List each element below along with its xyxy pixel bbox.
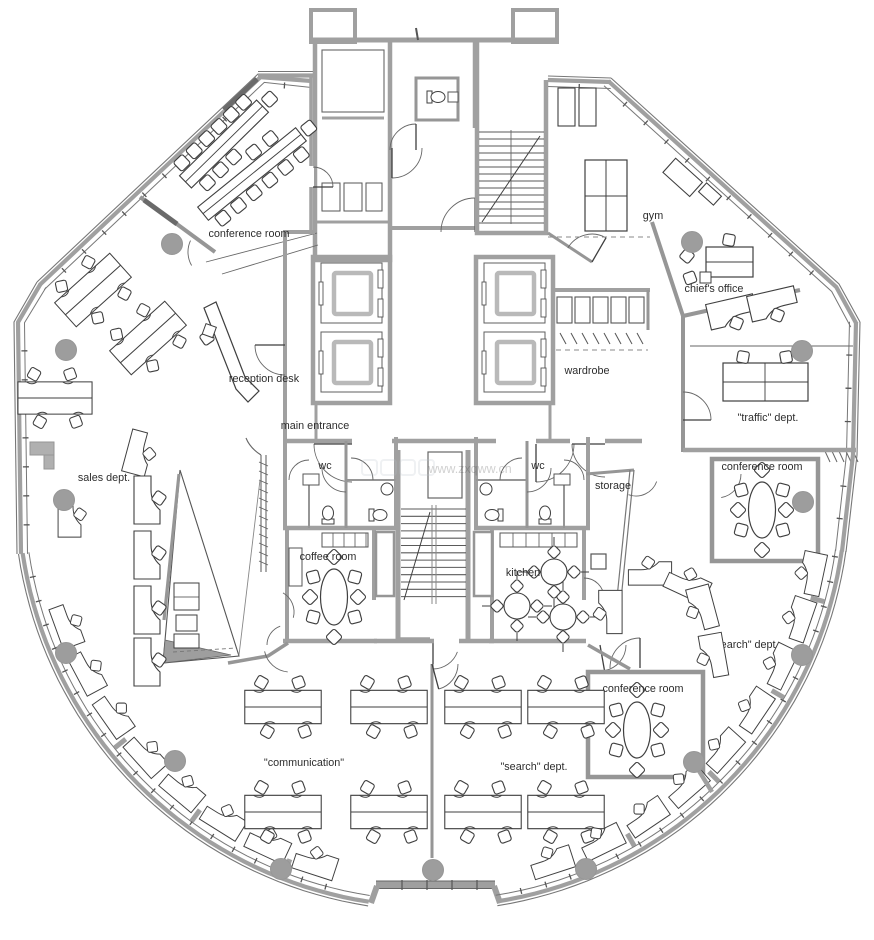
svg-text:conference room: conference room (721, 461, 802, 473)
svg-text:www.zxqww.cn: www.zxqww.cn (427, 462, 511, 476)
svg-text:chief's office: chief's office (685, 283, 744, 295)
svg-text:conference room: conference room (208, 228, 289, 240)
svg-text:conference room: conference room (602, 683, 683, 695)
svg-text:main entrance: main entrance (281, 420, 349, 432)
svg-text:wardrobe: wardrobe (563, 365, 609, 377)
svg-text:wc: wc (317, 460, 332, 472)
svg-text:kitchen: kitchen (506, 567, 540, 579)
svg-text:wc: wc (530, 460, 545, 472)
svg-text:storage: storage (595, 480, 631, 492)
svg-text:reception desk: reception desk (229, 373, 300, 385)
svg-text:"communication": "communication" (264, 757, 344, 769)
svg-text:sales dept.: sales dept. (78, 472, 130, 484)
svg-text:"search" dept.: "search" dept. (500, 761, 567, 773)
svg-text:coffee room: coffee room (300, 551, 357, 563)
svg-text:"traffic" dept.: "traffic" dept. (738, 412, 799, 424)
svg-text:gym: gym (643, 210, 663, 222)
